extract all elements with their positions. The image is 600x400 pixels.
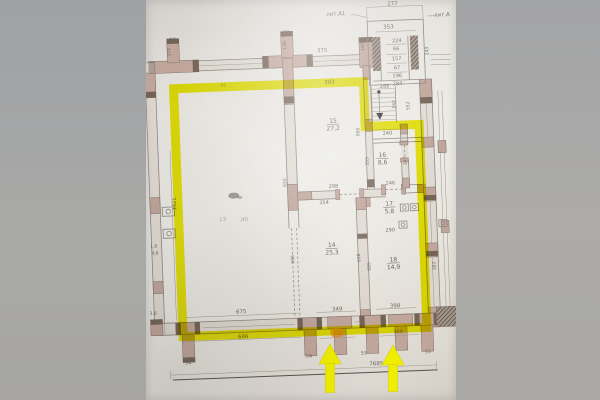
dimension-label: 243 bbox=[424, 46, 430, 55]
dimension-label: 13 bbox=[219, 217, 227, 223]
dimension-label: 354 bbox=[319, 200, 329, 206]
dimension-label: 130 bbox=[282, 41, 288, 50]
dimension-label: 7685 bbox=[369, 361, 384, 368]
dimension-label: 695 bbox=[290, 255, 296, 264]
up-arrow-icon bbox=[382, 345, 404, 392]
dimension-label: 383 bbox=[431, 261, 437, 270]
dimension-label: 4,6 bbox=[151, 251, 159, 257]
dimension-label: 1,8 bbox=[150, 244, 158, 250]
electrical-symbols bbox=[162, 196, 447, 238]
room-area: 5,8 bbox=[385, 208, 395, 215]
dimension-label: 240 bbox=[383, 130, 393, 136]
dimension-label: 349 bbox=[332, 306, 343, 312]
dimension-label: 695 bbox=[355, 127, 361, 136]
room-number: 14 bbox=[328, 242, 336, 249]
dimension-label: 675 bbox=[236, 309, 247, 315]
dimension-label: 298 bbox=[329, 184, 339, 190]
column-label: 54 bbox=[185, 360, 192, 366]
dimension-label: 620 bbox=[282, 178, 288, 187]
room-number: 16 bbox=[378, 152, 386, 159]
dimension-label: 224 bbox=[392, 38, 402, 44]
dimension-label: 618 bbox=[356, 253, 362, 262]
dimension-label: 52 bbox=[169, 38, 176, 44]
dimension-label: 160 bbox=[360, 42, 366, 51]
dimension-label: 398 bbox=[390, 303, 401, 309]
room-area: 14,9 bbox=[387, 264, 401, 272]
ground-line bbox=[173, 370, 438, 380]
dimension-label: 59 bbox=[155, 318, 161, 324]
dimension-label: 3,6 bbox=[150, 311, 158, 317]
room-number: 17 bbox=[385, 200, 393, 207]
letterbox-right bbox=[456, 0, 600, 400]
pencil-smudge bbox=[228, 192, 242, 199]
dimension-label: 353 bbox=[383, 24, 394, 30]
dimension-label: 196 bbox=[392, 73, 402, 79]
dimension-label: 67 bbox=[394, 65, 401, 71]
screenshot-root: 2773535251375413931601721302246615767196… bbox=[0, 0, 600, 400]
dimension-label: 347 bbox=[402, 156, 408, 165]
column-label: 55 bbox=[425, 349, 432, 355]
dimension-label: 242 bbox=[391, 100, 397, 109]
dimension-label: 353 bbox=[364, 157, 370, 166]
dimension-label: ,90 bbox=[239, 217, 248, 223]
column-label: 54 bbox=[306, 354, 313, 360]
dimension-label: 157 bbox=[392, 56, 402, 62]
room-area: 8,6 bbox=[378, 159, 388, 166]
dimension-label: 51 bbox=[283, 30, 290, 36]
electrical-outlet-icon bbox=[400, 204, 408, 211]
dimension-label: 552 bbox=[405, 101, 411, 110]
floorplan-photo: 2773535251375413931601721302246615767196… bbox=[146, 0, 456, 400]
dimension-label: 66 bbox=[393, 46, 400, 52]
building-designation: лит.А bbox=[434, 12, 450, 19]
dimension-label: 246 bbox=[386, 180, 396, 186]
room-area: 27,2 bbox=[326, 125, 340, 133]
room-number: 18 bbox=[389, 256, 397, 263]
dimension-label: 172 bbox=[166, 47, 172, 56]
dimension-label: 277 bbox=[387, 1, 398, 7]
building-designation: лит.А1 bbox=[326, 11, 346, 18]
dimension-label: 685 bbox=[366, 262, 372, 271]
dimension-label: 290 bbox=[385, 227, 395, 233]
dimension-label: 286 bbox=[380, 84, 390, 90]
room-number: 15 bbox=[329, 118, 337, 125]
dimension-label: 284 bbox=[393, 81, 403, 87]
floor-plan-drawing: 2773535251375413931601721302246615767196… bbox=[146, 0, 456, 400]
electrical-outlet-icon bbox=[410, 204, 418, 211]
dimension-label: 375 bbox=[317, 48, 328, 54]
electrical-outlet-icon bbox=[399, 221, 407, 228]
room-area: 25,3 bbox=[325, 249, 339, 257]
column-label: 55 bbox=[361, 351, 368, 357]
letterbox-left bbox=[0, 0, 146, 400]
